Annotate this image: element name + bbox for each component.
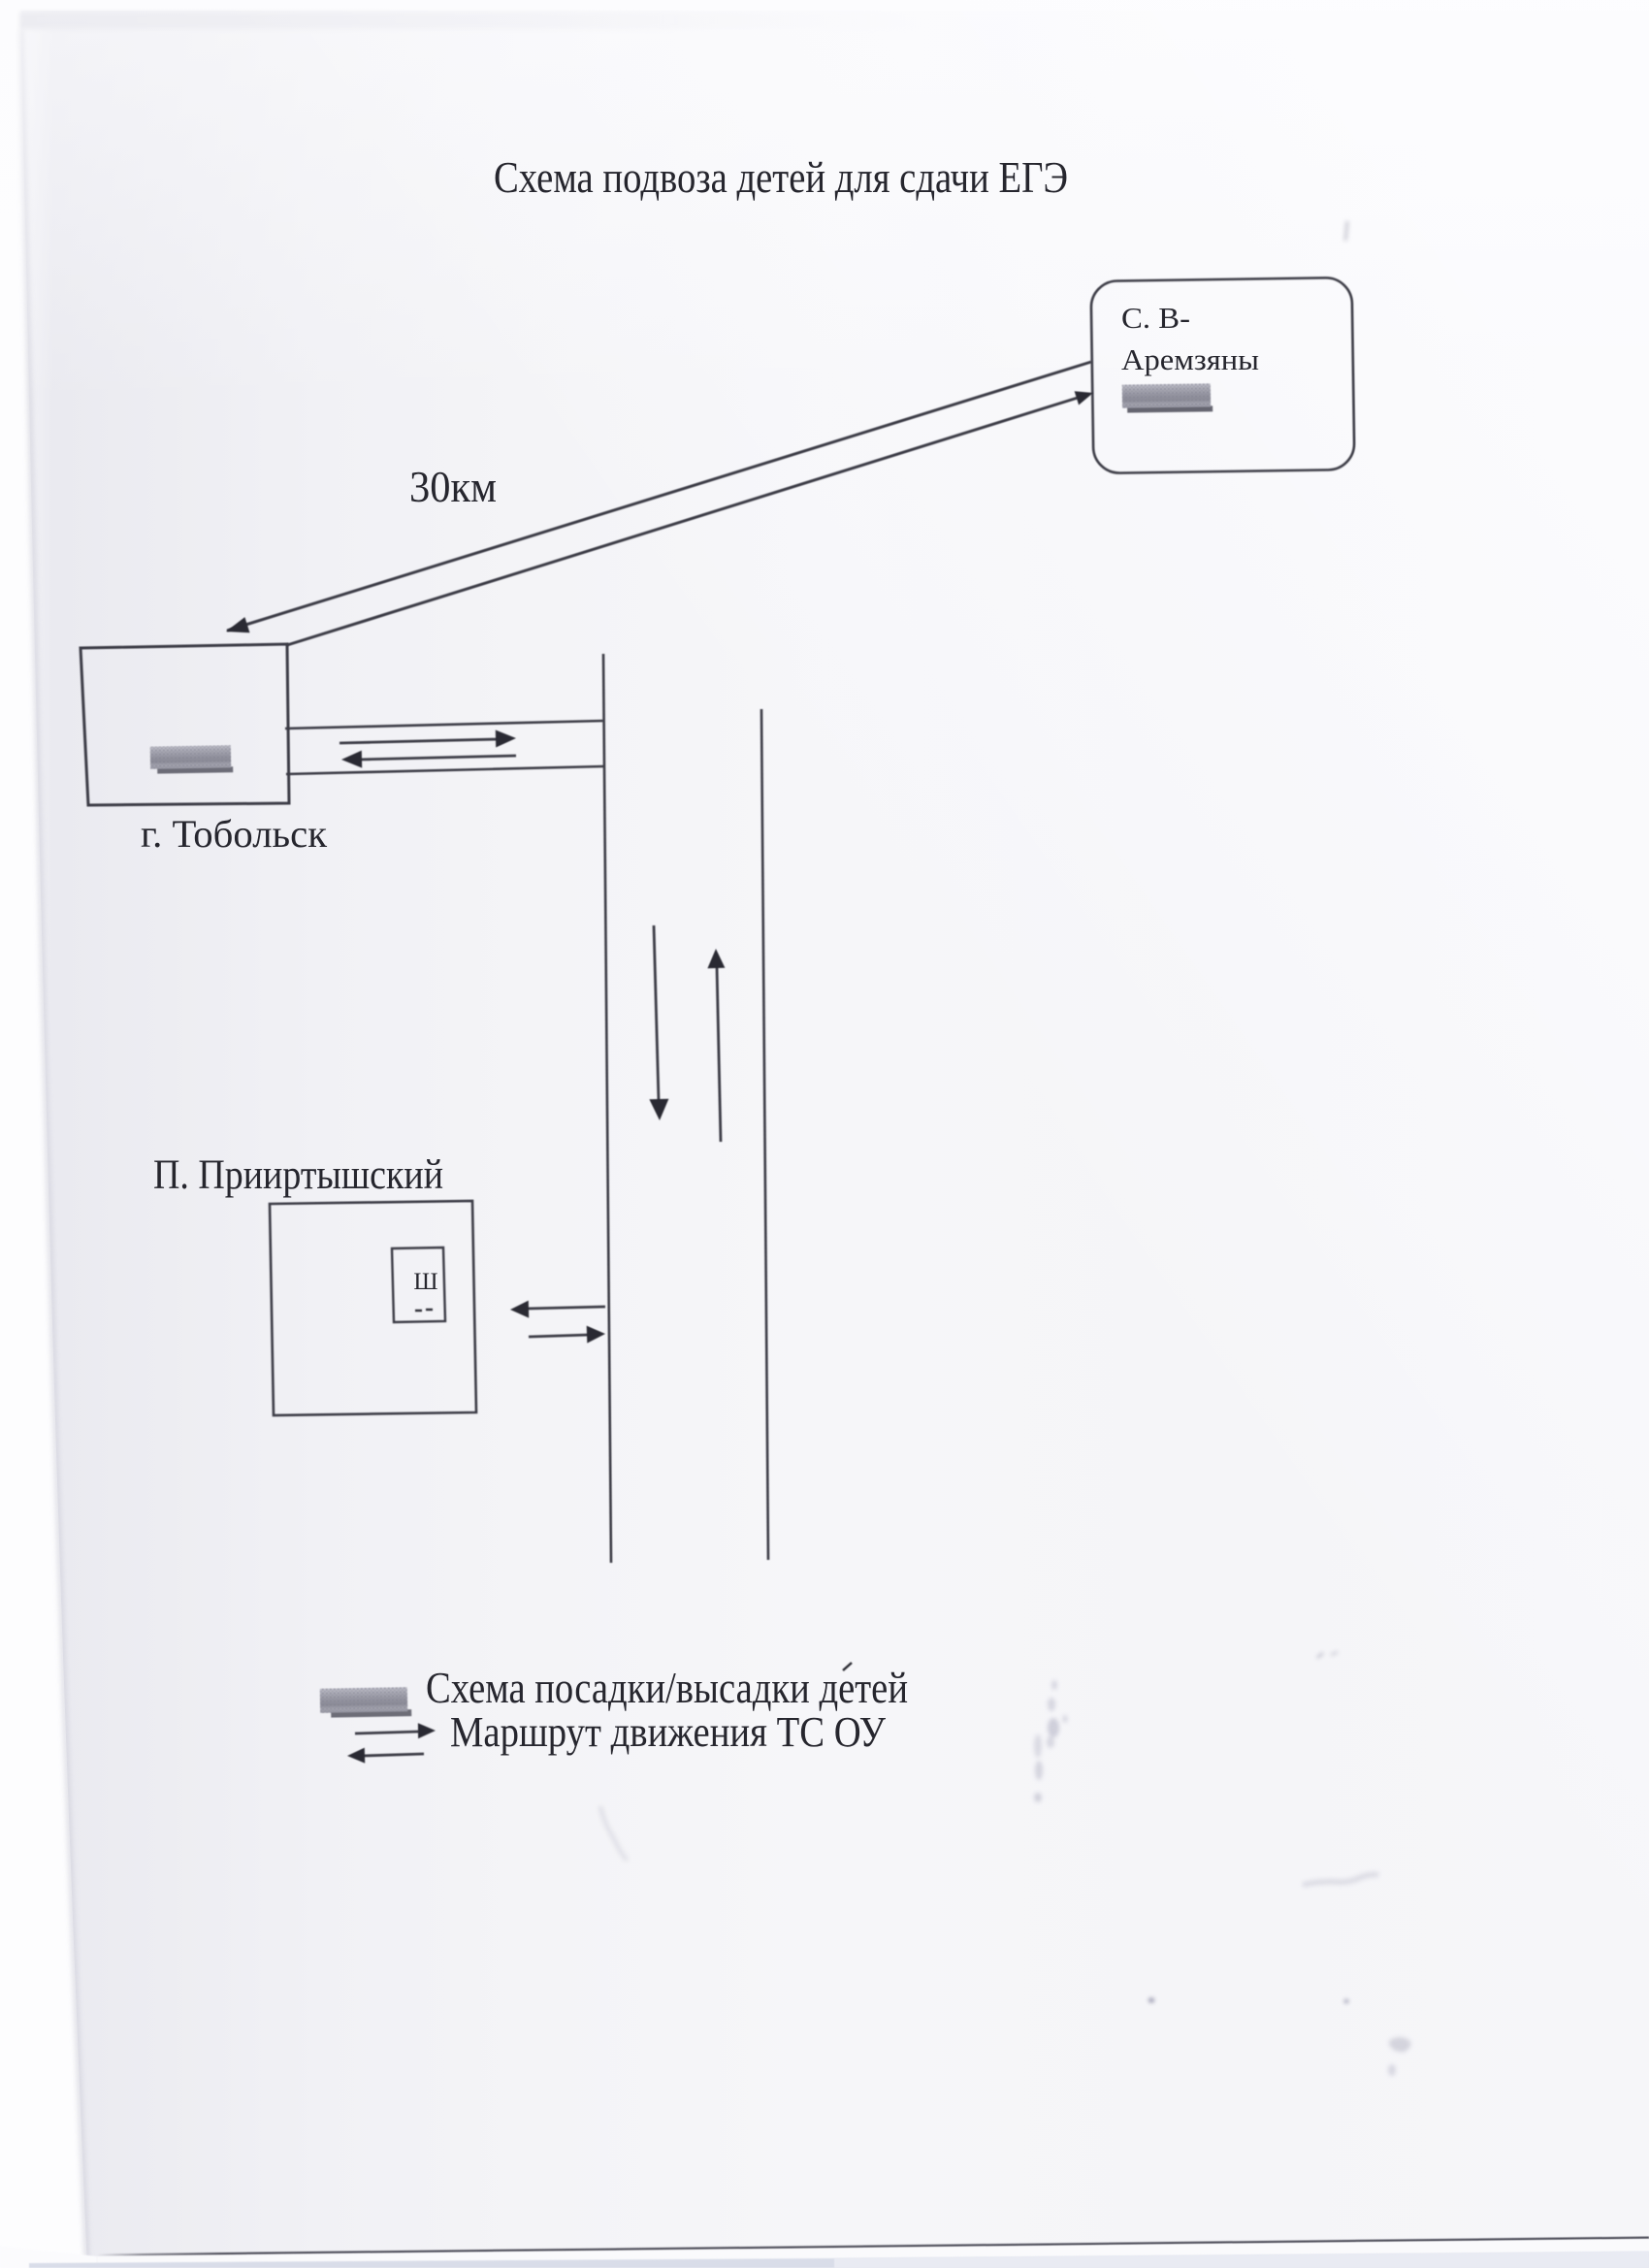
svg-text:г. Тобольск: г. Тобольск [141,812,328,856]
svg-text:Ш: Ш [413,1269,437,1295]
svg-text:С. В-: С. В- [1121,301,1190,335]
svg-text:30км: 30км [409,462,497,511]
svg-text:Схема подвоза детей для сдачи: Схема подвоза детей для сдачи ЕГЭ [494,152,1068,202]
svg-text:Схема посадки/высадки детей: Схема посадки/высадки детей [426,1663,908,1712]
svg-text:Аремзяны: Аремзяны [1121,342,1259,376]
svg-text:Маршрут движения ТС ОУ: Маршрут движения ТС ОУ [450,1708,887,1756]
svg-text:П. Прииртышский: П. Прииртышский [153,1152,443,1198]
